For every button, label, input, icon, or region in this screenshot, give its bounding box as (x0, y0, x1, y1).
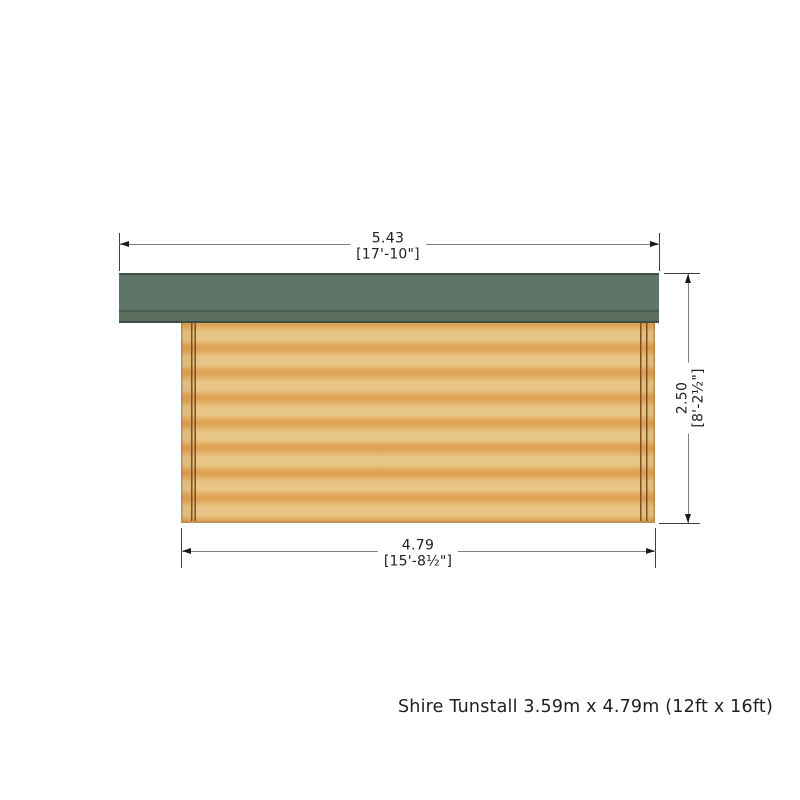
dimension-value-metric: 5.43 (356, 231, 420, 247)
extension-line-bottom (659, 523, 700, 524)
dimension-value-imperial: [8'-2½"] (691, 368, 707, 427)
dimension-value-metric: 2.50 (675, 368, 691, 427)
dimension-label-wall-width: 4.79 [15'-8½"] (378, 537, 458, 570)
corner-post-left (182, 323, 197, 521)
dim-arrowhead-left (182, 548, 191, 554)
dim-arrowhead-right (650, 241, 659, 247)
extension-line-left (119, 233, 120, 271)
dim-arrowhead-left (120, 241, 129, 247)
roof-fascia (119, 312, 659, 321)
dim-arrowhead-right (646, 548, 655, 554)
extension-line-right (655, 528, 656, 568)
dimension-value-metric: 4.79 (384, 538, 452, 554)
dimension-value-imperial: [15'-8½"] (384, 554, 452, 570)
dim-arrowhead-down (685, 514, 691, 523)
extension-line-right (659, 233, 660, 271)
dimension-label-building-height: 2.50 [8'-2½"] (674, 362, 707, 433)
log-wall (181, 323, 655, 523)
product-caption: Shire Tunstall 3.59m x 4.79m (12ft x 16f… (398, 697, 773, 717)
extension-line-top (664, 273, 700, 274)
roof (119, 273, 659, 323)
dim-arrowhead-up (685, 274, 691, 283)
corner-post-right (640, 323, 654, 521)
dimension-value-imperial: [17'-10"] (356, 247, 420, 263)
elevation-drawing: 5.43 [17'-10"] 2.50 [8'-2½"] 4.79 [15'-8… (0, 0, 800, 800)
dimension-label-roof-width: 5.43 [17'-10"] (350, 230, 426, 263)
